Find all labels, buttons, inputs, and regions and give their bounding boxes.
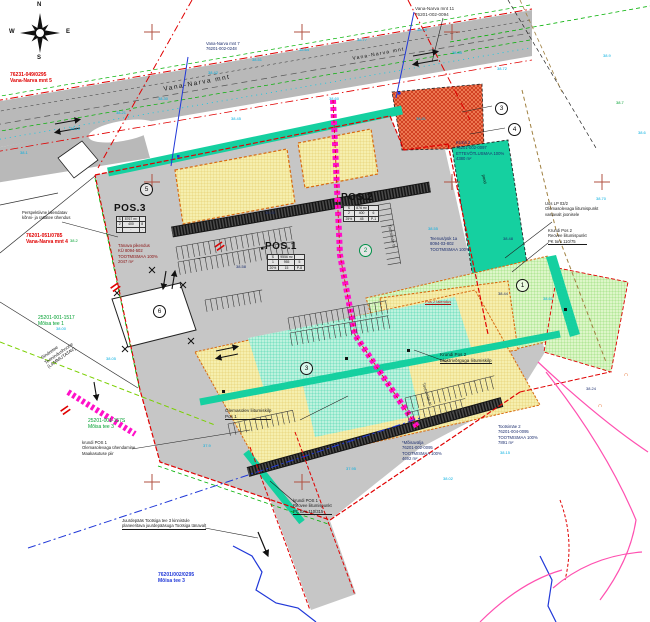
flow-arrow xyxy=(258,532,268,556)
site-plan-canvas xyxy=(0,0,650,622)
survey-cross xyxy=(594,174,610,190)
survey-cross xyxy=(144,24,160,40)
survey-cross xyxy=(144,474,160,490)
compass-rose xyxy=(20,13,60,53)
site-plan-drawing: N S W E POS.3 S8767 m²24008··· POS.2 S87… xyxy=(0,0,650,622)
parcel-orange-hatched xyxy=(392,84,484,150)
survey-cross xyxy=(294,24,310,40)
